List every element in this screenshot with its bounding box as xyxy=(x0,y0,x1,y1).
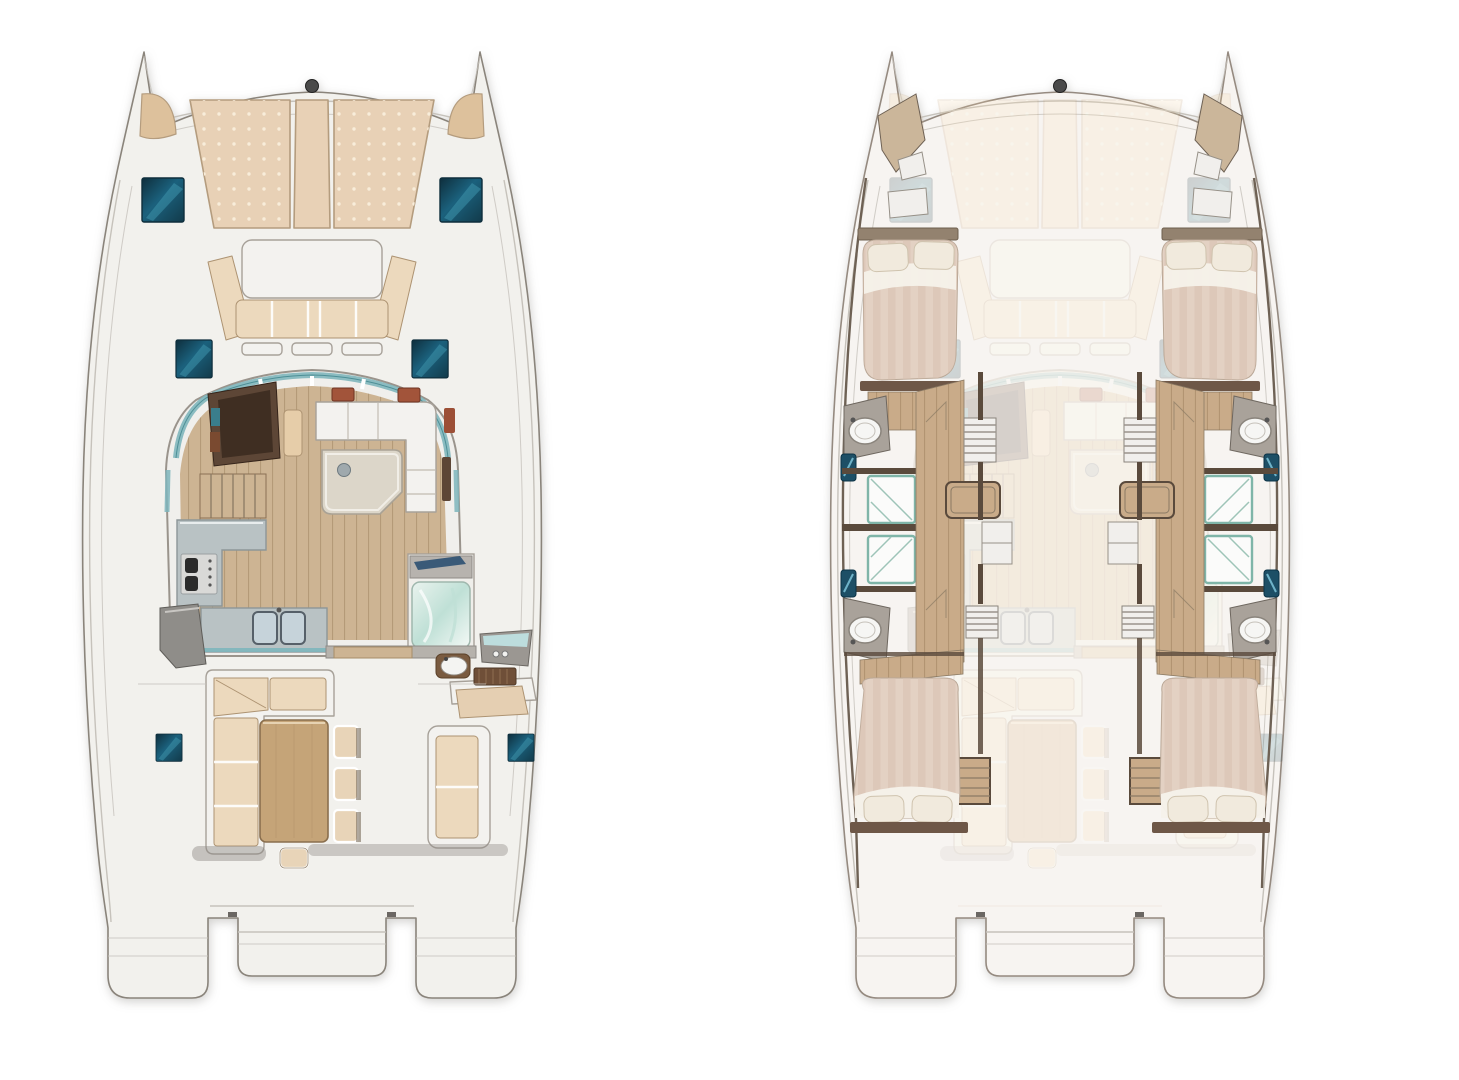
catamaran-layout-diagram xyxy=(0,0,1459,1080)
hull-plan-view xyxy=(831,52,1290,998)
layout-canvas xyxy=(0,0,1459,1080)
deck-plan-view xyxy=(83,52,542,998)
